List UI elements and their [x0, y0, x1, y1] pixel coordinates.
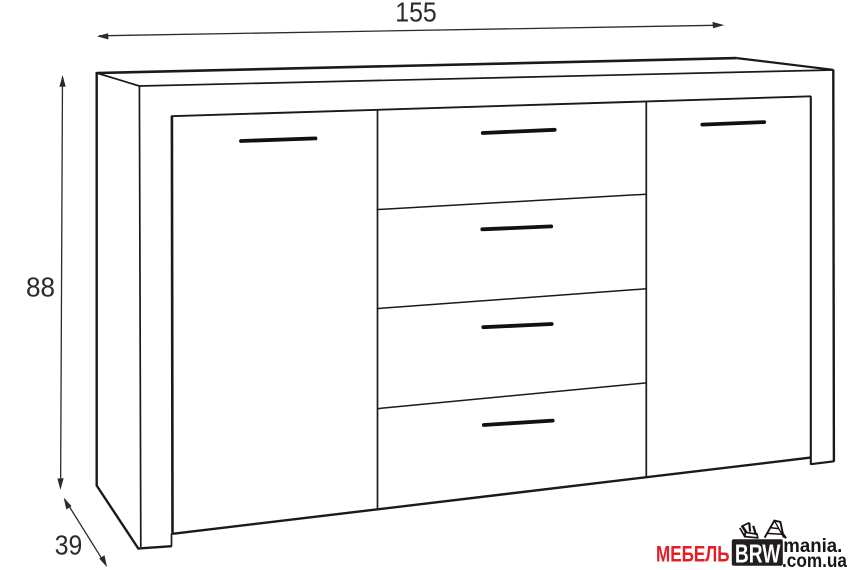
svg-text:155: 155 [395, 0, 437, 27]
svg-text:88: 88 [26, 271, 55, 302]
svg-text:МЕБЕЛЬ: МЕБЕЛЬ [656, 542, 730, 567]
svg-text:39: 39 [55, 530, 83, 561]
svg-text:.com.ua: .com.ua [782, 551, 847, 570]
svg-text:BRW: BRW [735, 540, 781, 568]
